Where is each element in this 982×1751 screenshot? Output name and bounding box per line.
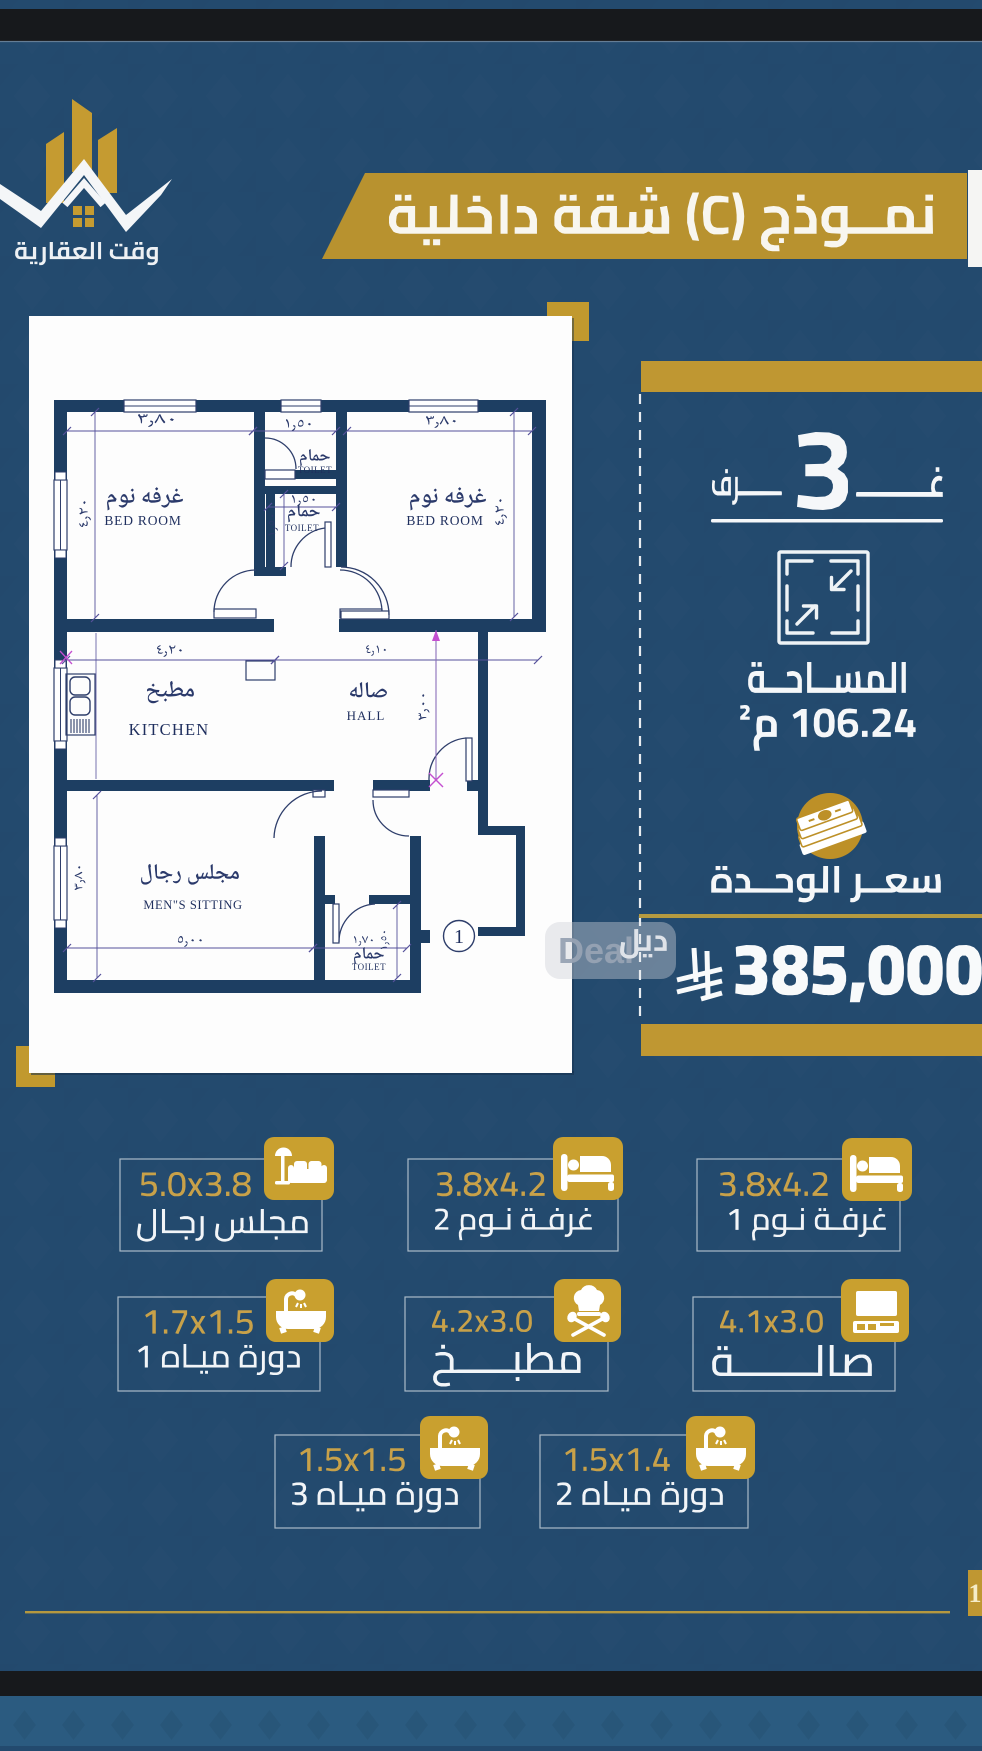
svg-text:KITCHEN: KITCHEN	[129, 720, 210, 739]
svg-text:1: 1	[454, 926, 464, 948]
svg-text:MEN"S SITTING: MEN"S SITTING	[143, 898, 242, 912]
svg-text:HALL: HALL	[347, 708, 386, 723]
svg-text:BED ROOM: BED ROOM	[104, 513, 181, 528]
svg-text:1: 1	[969, 1579, 982, 1608]
svg-text:TOILET: TOILET	[285, 523, 319, 533]
svg-text:BED ROOM: BED ROOM	[406, 513, 483, 528]
svg-text:TOILET: TOILET	[298, 465, 332, 475]
svg-text:TOILET: TOILET	[352, 962, 386, 972]
